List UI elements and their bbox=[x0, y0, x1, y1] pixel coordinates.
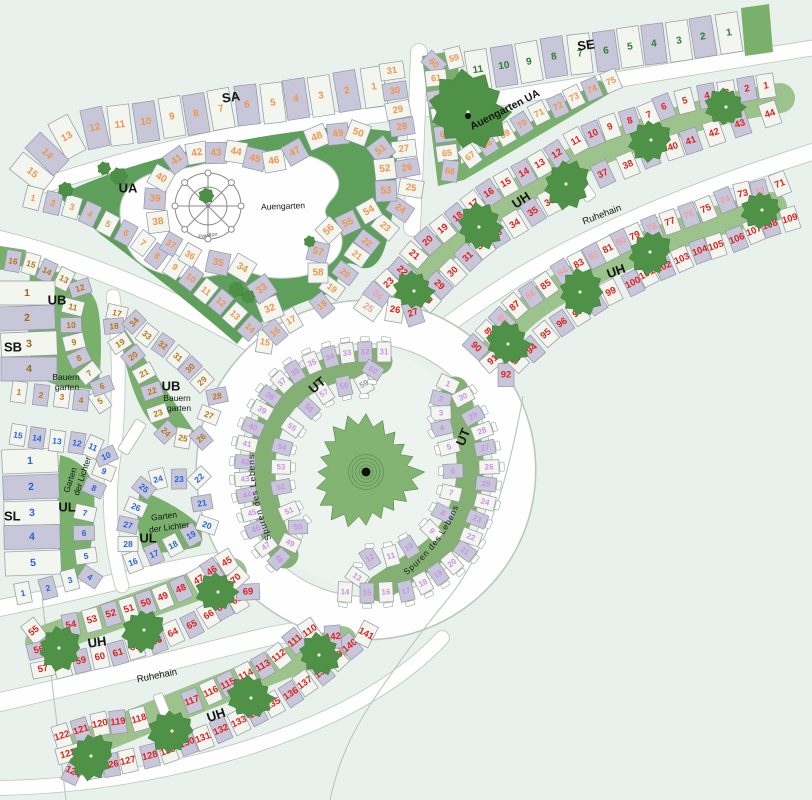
plot-number: 92 bbox=[501, 370, 512, 381]
plot-number: 2 bbox=[28, 481, 34, 493]
plot-number: 32 bbox=[360, 347, 370, 356]
plot-number: 4 bbox=[26, 363, 32, 375]
plot-number: 25 bbox=[481, 479, 491, 489]
plot-number: 16 bbox=[381, 587, 391, 596]
plot-number: 53 bbox=[276, 462, 286, 471]
plot-number: 11 bbox=[114, 119, 126, 131]
plot-number: 27 bbox=[398, 143, 410, 155]
label-sa: SA bbox=[221, 88, 242, 105]
plot-number: 10 bbox=[66, 320, 76, 330]
bench-icon bbox=[500, 462, 505, 471]
bench-icon bbox=[439, 466, 444, 475]
plot-number: 15 bbox=[259, 336, 270, 347]
plot-number: 25 bbox=[177, 432, 188, 443]
plot-number: 13 bbox=[52, 435, 63, 446]
cemetery-garden-map: 1234567891011121314151234567891011123456… bbox=[0, 0, 812, 800]
plot-number: 1 bbox=[24, 287, 30, 299]
plot-number: 52 bbox=[379, 163, 392, 175]
label-garten: garten bbox=[55, 382, 79, 392]
plot-number: 30 bbox=[389, 85, 401, 97]
plot-number: 69 bbox=[242, 586, 253, 597]
label-ul: UL bbox=[58, 500, 75, 515]
bench-icon bbox=[353, 562, 362, 567]
plot-number: 38 bbox=[152, 216, 165, 228]
plot-number: 58 bbox=[312, 268, 324, 279]
label-ub: UB bbox=[48, 293, 67, 308]
plot-number: 28 bbox=[123, 539, 133, 549]
bench-icon bbox=[291, 463, 296, 472]
label-bauern: Bauern bbox=[52, 372, 80, 382]
plot-number: 31 bbox=[380, 348, 389, 357]
label-auengarten: Auengarten bbox=[261, 200, 306, 212]
plot-number: 14 bbox=[340, 587, 350, 596]
plot-number: 12 bbox=[72, 437, 83, 448]
green-area bbox=[741, 4, 773, 56]
plot-number: 26 bbox=[484, 462, 494, 471]
bench-icon bbox=[360, 337, 369, 341]
plot-number: 23 bbox=[174, 474, 184, 484]
plot-number: 3 bbox=[29, 507, 35, 519]
bench-icon bbox=[496, 481, 501, 490]
plot-number: 26 bbox=[389, 304, 401, 317]
plot-number: 4 bbox=[29, 531, 35, 543]
bench-icon bbox=[230, 475, 235, 484]
plot-number: 66 bbox=[444, 165, 455, 176]
plot-number: 60 bbox=[94, 651, 107, 664]
plot-number: 5 bbox=[30, 557, 36, 569]
bench-icon bbox=[368, 379, 377, 384]
plot-number: 15 bbox=[13, 429, 24, 440]
plot-number: 65 bbox=[441, 147, 452, 158]
label-ua: UA bbox=[119, 181, 138, 196]
bench-icon bbox=[363, 604, 372, 608]
bench-icon bbox=[381, 336, 391, 342]
plot-number: 10 bbox=[498, 60, 511, 73]
bench-icon bbox=[365, 544, 374, 549]
label-sb: SB bbox=[4, 340, 22, 355]
bench-icon bbox=[360, 394, 369, 399]
label-sl: SL bbox=[4, 509, 21, 524]
plot-number: 28 bbox=[396, 121, 408, 133]
bench-icon bbox=[230, 457, 235, 466]
tree-marker-dot bbox=[465, 113, 471, 119]
plot-number: 43 bbox=[210, 147, 222, 158]
plot-number: 50 bbox=[293, 522, 303, 531]
label-bauern: Bauern bbox=[163, 393, 191, 403]
label-se: SE bbox=[576, 36, 596, 53]
plot-number: 18 bbox=[109, 321, 120, 332]
plot-number: 29 bbox=[392, 104, 404, 117]
plot-number: 21 bbox=[196, 497, 207, 508]
plot-number: 1 bbox=[27, 455, 33, 467]
plot-number: 53 bbox=[380, 185, 392, 197]
plot-number: 49 bbox=[332, 128, 345, 140]
plot-number: 2 bbox=[24, 312, 30, 324]
site-map-svg: 1234567891011121314151234567891011123456… bbox=[0, 0, 812, 800]
plot-number: 14 bbox=[32, 432, 43, 443]
plot-number: 6 bbox=[82, 528, 87, 538]
plot-number: 3 bbox=[26, 338, 32, 350]
plot-number: 16 bbox=[8, 255, 19, 266]
label-ub: UB bbox=[162, 379, 181, 394]
plot-number: 119 bbox=[110, 716, 127, 729]
plot-number: 26 bbox=[401, 162, 413, 175]
plot-number: 10 bbox=[140, 116, 153, 129]
label-garten: garten bbox=[167, 403, 191, 413]
plot-number: 44 bbox=[230, 146, 243, 159]
label-uh: UH bbox=[87, 633, 108, 650]
plot-number: 39 bbox=[149, 193, 161, 205]
plot-number: 11 bbox=[472, 64, 485, 77]
plot-number: 15 bbox=[363, 589, 372, 598]
pavilion-icon bbox=[172, 170, 244, 242]
